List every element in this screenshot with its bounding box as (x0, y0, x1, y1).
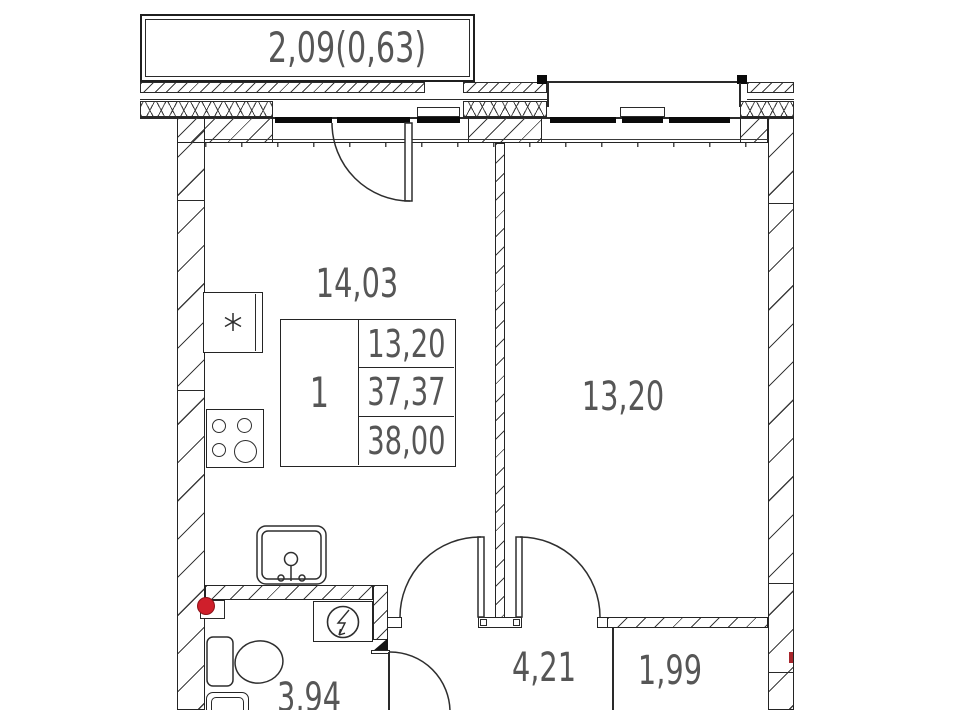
living-room-door-leaf (516, 537, 522, 617)
sink-icon (257, 526, 326, 584)
bathroom-area-label: 3,94 (223, 678, 396, 710)
living-room-door-swing-arc (520, 537, 600, 617)
electric-meter-circle (328, 607, 359, 638)
stamp-area: 37,37 (367, 370, 445, 414)
kitchen-door-swing-arc (400, 537, 481, 617)
living-room-door (516, 537, 600, 617)
electric-meter-icon (328, 607, 359, 638)
kitchen-area-label: 14,03 (249, 264, 465, 304)
stamp-room-count-cell: 1 (281, 320, 359, 465)
bathroom-door (390, 652, 450, 710)
asterisk-strokes (225, 313, 241, 331)
bathroom-door-swing-arc (390, 652, 450, 710)
balcony-door-swing-arc (332, 123, 410, 201)
fixtures-and-doors-layer (0, 0, 960, 710)
lightning-bolt-icon (338, 610, 349, 635)
fridge-asterisk-icon (225, 313, 241, 331)
balcony-area-label: 2,09(0,63) (232, 27, 462, 69)
balcony-door-leaf (405, 123, 412, 201)
stamp-total-area: 38,00 (367, 419, 445, 463)
stamp-area-cell: 37,37 (359, 368, 454, 417)
area-stamp: 1 13,20 37,37 38,00 (280, 319, 456, 467)
stamp-room-count: 1 (310, 368, 329, 417)
living-room-area-label: 13,20 (515, 377, 731, 417)
balcony-door (332, 123, 412, 201)
kitchen-door-leaf (478, 537, 484, 617)
floor-plan: 1 13,20 37,37 38,00 2,09(0,63) 14,03 13,… (0, 0, 960, 710)
stamp-living-area: 13,20 (367, 322, 445, 366)
kitchen-door (400, 537, 484, 617)
storage-area-label: 1,99 (584, 651, 757, 691)
stamp-total-area-cell: 38,00 (359, 417, 454, 465)
stamp-living-area-cell: 13,20 (359, 320, 454, 368)
